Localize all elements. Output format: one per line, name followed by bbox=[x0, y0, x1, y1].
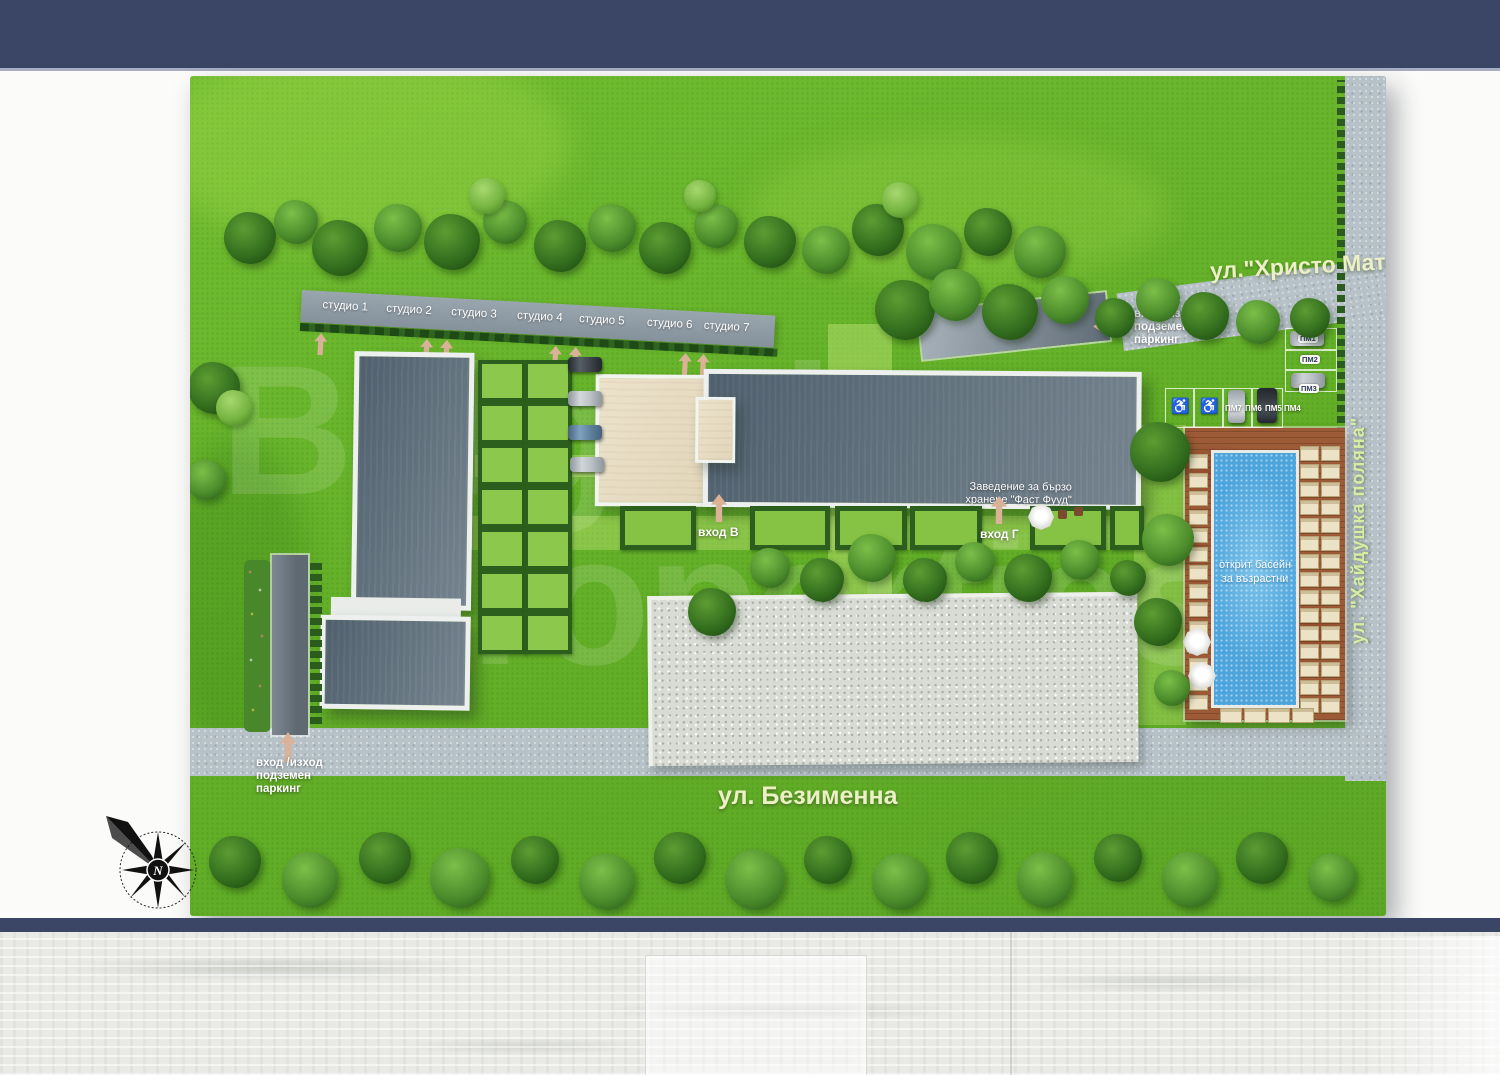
tree bbox=[1060, 540, 1100, 580]
sun-lounger bbox=[1244, 708, 1266, 723]
sun-lounger bbox=[1321, 554, 1340, 569]
sun-lounger bbox=[1321, 482, 1340, 497]
tree bbox=[1136, 278, 1180, 322]
tree bbox=[588, 204, 636, 252]
sun-lounger bbox=[1189, 473, 1208, 488]
sun-lounger bbox=[1300, 572, 1319, 587]
sun-lounger bbox=[1321, 464, 1340, 479]
sun-lounger bbox=[1300, 536, 1319, 551]
parking-spot-pm5: ПМ5 bbox=[1265, 404, 1282, 413]
tree bbox=[374, 204, 422, 252]
sun-lounger bbox=[1321, 536, 1340, 551]
tree bbox=[1236, 300, 1280, 344]
sun-lounger bbox=[1321, 644, 1340, 659]
ramp-hedge bbox=[310, 562, 322, 724]
tree bbox=[359, 832, 411, 884]
garden-plot bbox=[478, 528, 526, 570]
tree bbox=[1142, 514, 1194, 566]
tree bbox=[224, 212, 276, 264]
sun-lounger bbox=[1189, 491, 1208, 506]
top-navy-bar bbox=[0, 0, 1500, 71]
tree bbox=[312, 220, 368, 276]
marble-seam bbox=[1010, 932, 1012, 1075]
tree bbox=[882, 182, 918, 218]
tree bbox=[1290, 298, 1330, 338]
sun-lounger bbox=[1300, 590, 1319, 605]
car bbox=[568, 425, 602, 440]
sun-lounger bbox=[1220, 708, 1242, 723]
flower-bed bbox=[244, 560, 271, 732]
hedge-plot bbox=[620, 506, 696, 550]
garden-plot bbox=[524, 570, 572, 612]
sun-lounger bbox=[1300, 482, 1319, 497]
tree bbox=[982, 284, 1038, 340]
tree bbox=[903, 558, 947, 602]
compass-svg: N bbox=[98, 808, 210, 920]
fastfood-line1: Заведение за бързо bbox=[965, 481, 1072, 495]
garden-plot bbox=[478, 444, 526, 486]
street-label-right: ул. "Хайдушка поляна" bbox=[1348, 424, 1369, 644]
tree bbox=[209, 836, 261, 888]
garage-label-line: подземен bbox=[256, 770, 323, 783]
garden-plot bbox=[478, 612, 526, 654]
sun-lounger bbox=[1300, 446, 1319, 461]
garage-label-line: паркинг bbox=[1134, 334, 1201, 347]
sun-lounger bbox=[1189, 695, 1208, 710]
building-west-roof-lower bbox=[320, 615, 471, 711]
hedge-plot bbox=[750, 506, 830, 550]
tree bbox=[579, 854, 635, 910]
tree bbox=[430, 848, 490, 908]
tree bbox=[282, 852, 338, 908]
fastfood-label: Заведение за бързо хранене "Фаст Фууд" bbox=[965, 481, 1072, 508]
parking-spot-pm7: ПМ7 bbox=[1225, 404, 1242, 413]
building-west-roof bbox=[351, 351, 475, 611]
garage-label-line: вход /изход bbox=[256, 757, 323, 770]
sun-lounger bbox=[1292, 708, 1314, 723]
tree bbox=[964, 208, 1012, 256]
garden-plot bbox=[478, 570, 526, 612]
sun-lounger bbox=[1321, 518, 1340, 533]
pool-label-line1: открит басейн bbox=[1214, 559, 1296, 571]
sun-lounger bbox=[1300, 626, 1319, 641]
tree bbox=[1004, 554, 1052, 602]
tree bbox=[469, 178, 505, 214]
sun-lounger bbox=[1268, 708, 1290, 723]
tree bbox=[946, 832, 998, 884]
car bbox=[570, 457, 604, 472]
pool: открит басейн за възрастни bbox=[1211, 450, 1299, 708]
garden-plot bbox=[478, 360, 526, 402]
tree bbox=[639, 222, 691, 274]
garden-plot bbox=[524, 486, 572, 528]
master-plan: Bulgarian Properties студио 1студио 2сту… bbox=[190, 76, 1386, 916]
tree bbox=[929, 269, 981, 321]
tree bbox=[1236, 832, 1288, 884]
tree bbox=[804, 836, 852, 884]
tree bbox=[1162, 852, 1218, 908]
sun-lounger bbox=[1321, 500, 1340, 515]
tree bbox=[688, 588, 736, 636]
garden-plot bbox=[524, 528, 572, 570]
tree bbox=[1308, 854, 1356, 902]
sun-lounger bbox=[1321, 446, 1340, 461]
tree bbox=[750, 548, 790, 588]
parking-spot-pm3: ПМ3 bbox=[1299, 384, 1319, 393]
cafe-table bbox=[1058, 510, 1067, 519]
tree bbox=[1154, 670, 1190, 706]
tree bbox=[1041, 276, 1089, 324]
sun-lounger bbox=[1189, 565, 1208, 580]
cafe-umbrella bbox=[1028, 504, 1054, 530]
sun-lounger bbox=[1189, 454, 1208, 469]
sun-lounger bbox=[1321, 572, 1340, 587]
tree bbox=[1094, 834, 1142, 882]
building-central-roof: Заведение за бързо хранене "Фаст Фууд" bbox=[703, 369, 1142, 510]
garden-plot bbox=[478, 486, 526, 528]
cafe-table bbox=[1074, 507, 1083, 516]
sun-lounger bbox=[1300, 518, 1319, 533]
tree bbox=[424, 214, 480, 270]
sun-lounger bbox=[1321, 698, 1340, 713]
sun-lounger bbox=[1321, 608, 1340, 623]
tree bbox=[1181, 292, 1229, 340]
hedge-plot bbox=[1110, 506, 1144, 550]
tree bbox=[1017, 852, 1073, 908]
tree bbox=[725, 850, 785, 910]
garden-plot bbox=[524, 612, 572, 654]
sun-lounger bbox=[1189, 602, 1208, 617]
sun-lounger bbox=[1321, 662, 1340, 677]
tree bbox=[875, 280, 935, 340]
tree bbox=[216, 390, 252, 426]
garden-plot bbox=[524, 402, 572, 444]
tree bbox=[1130, 422, 1190, 482]
tree bbox=[1134, 598, 1182, 646]
sun-lounger bbox=[1321, 626, 1340, 641]
site-plan-page: Bulgarian Properties студио 1студио 2сту… bbox=[0, 0, 1500, 1075]
garden-plot bbox=[524, 360, 572, 402]
tree bbox=[872, 854, 928, 910]
parking-spot-pm6: ПМ6 bbox=[1245, 404, 1262, 413]
sun-lounger bbox=[1300, 464, 1319, 479]
compass-rose: N bbox=[98, 808, 210, 920]
tree bbox=[955, 542, 995, 582]
street-label-bottom: ул. Безименна bbox=[718, 782, 878, 811]
car bbox=[568, 357, 602, 372]
parking-spot-pm2: ПМ2 bbox=[1300, 355, 1320, 364]
tree bbox=[534, 220, 586, 272]
sun-lounger bbox=[1321, 590, 1340, 605]
sun-lounger bbox=[1300, 608, 1319, 623]
tree bbox=[800, 558, 844, 602]
parking-spot-pm4: ПМ4 bbox=[1284, 404, 1301, 413]
sun-lounger bbox=[1300, 554, 1319, 569]
sun-lounger bbox=[1300, 500, 1319, 515]
car bbox=[568, 391, 602, 406]
sun-lounger bbox=[1189, 584, 1208, 599]
sun-lounger bbox=[1300, 662, 1319, 677]
entrance-v-label: вход В bbox=[698, 525, 739, 539]
handicap-icon: ♿ bbox=[1171, 397, 1190, 415]
building-central-roof-step bbox=[695, 397, 735, 463]
bottom-navy-bar bbox=[0, 918, 1500, 932]
tree bbox=[802, 226, 850, 274]
marble-panel bbox=[645, 955, 867, 1075]
sun-lounger bbox=[1300, 680, 1319, 695]
garage-ramp-south bbox=[272, 555, 308, 735]
entrance-g-label: вход Г bbox=[980, 527, 1019, 541]
garage-label-line: паркинг bbox=[256, 783, 323, 796]
sun-lounger bbox=[1300, 644, 1319, 659]
tree bbox=[1095, 298, 1135, 338]
tree bbox=[511, 836, 559, 884]
tree bbox=[744, 216, 796, 268]
tree bbox=[684, 180, 716, 212]
garage-label-south: вход /изход подземен паркинг bbox=[256, 757, 323, 796]
tree bbox=[848, 534, 896, 582]
handicap-icon: ♿ bbox=[1200, 397, 1219, 415]
tree bbox=[274, 200, 318, 244]
sun-lounger bbox=[1321, 680, 1340, 695]
garden-plot bbox=[524, 444, 572, 486]
tree bbox=[1110, 560, 1146, 596]
pool-label-line2: за възрастни bbox=[1214, 573, 1296, 585]
tree bbox=[654, 832, 706, 884]
compass-north-letter: N bbox=[152, 863, 163, 878]
marble-highlight bbox=[1358, 936, 1500, 1075]
garden-plot bbox=[478, 402, 526, 444]
tree bbox=[1014, 226, 1066, 278]
sun-lounger bbox=[1189, 510, 1208, 525]
